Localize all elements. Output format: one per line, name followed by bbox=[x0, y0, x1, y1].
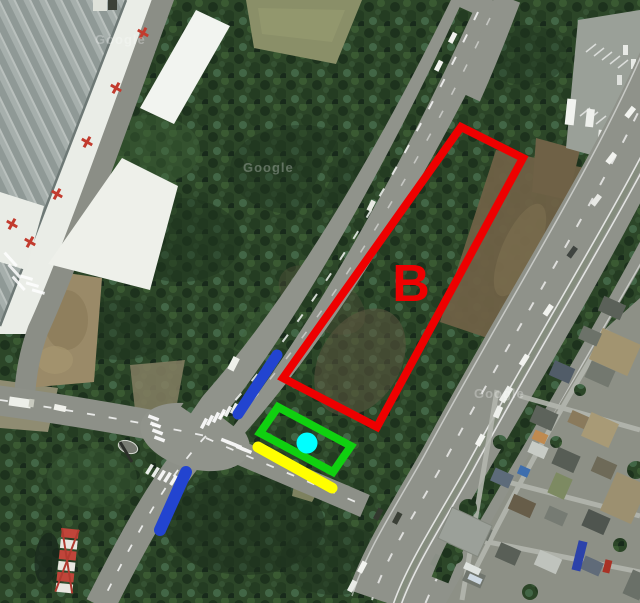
map-canvas: Google Google Google B bbox=[0, 0, 640, 603]
watermark-text: Google bbox=[243, 160, 294, 175]
watermark-text: Google bbox=[95, 32, 146, 47]
watermark-text: Google bbox=[474, 386, 525, 401]
annotated-aerial-map: Google Google Google B bbox=[0, 0, 640, 603]
area-label-b: B bbox=[392, 255, 430, 313]
cyan-dot-marker bbox=[297, 433, 318, 454]
truck-top-edge bbox=[93, 0, 107, 11]
